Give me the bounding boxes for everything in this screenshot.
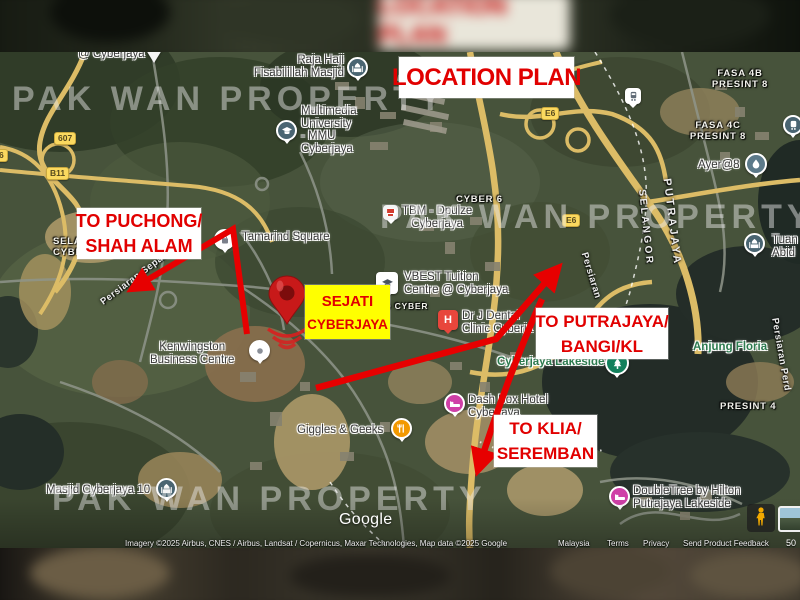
road-badge-e6: E6 [541,107,559,120]
blurred-title-card: LOCATION PLAN [378,0,570,50]
hospital-pin-icon[interactable]: H [438,310,458,330]
poi-label-vbest[interactable]: VBEST TuitionCentre @ Cyberjaya [404,271,508,296]
hotel-pin-icon[interactable] [444,393,465,414]
poi-label-giggles[interactable]: Giggles & Geeks [297,424,383,437]
poi-label-masjid-cyberjaya-10[interactable]: Masjid Cyberjaya 10 [46,484,150,497]
pegman-icon [755,507,767,529]
callout-sejati-cyberjaya: SEJATI CYBERJAYA [305,285,390,339]
store-pin-icon[interactable] [383,205,398,220]
poi-label-raja-haji[interactable]: Raja HajiFisabilillah Masjid [240,54,344,79]
scale-label: 50 [786,538,796,548]
area-label-cyber6: CYBER 6 [456,194,503,205]
blurred-location-plan-text: LOCATION PLAN [378,0,570,50]
terms-link[interactable]: Terms [607,539,629,548]
road-badge-edge: 6 [0,149,8,162]
hotel-pin-icon[interactable] [609,486,630,507]
road-badge-b11: B11 [46,167,69,180]
blurred-backdrop [0,548,800,600]
mosque-pin-icon[interactable] [744,233,765,254]
poi-label-kenwingston[interactable]: KenwingstonBusiness Centre [150,341,234,366]
station-pin-icon[interactable] [783,115,800,135]
blurred-backdrop: LOCATION PLAN [0,0,800,52]
water-pin-icon[interactable] [745,153,767,175]
area-label-o-cyber: O CYBER [384,301,428,312]
business-pin-icon[interactable] [249,340,270,361]
map-pin-icon[interactable] [146,52,162,63]
callout-to-klia: TO KLIA/ SEREMBAN [494,415,597,467]
train-station-pin-icon[interactable] [625,88,641,104]
callout-to-putrajaya: TO PUTRAJAYA/ BANGI/KL [536,308,668,359]
feedback-link[interactable]: Send Product Feedback [683,539,769,548]
road-badge-607: 607 [54,132,76,145]
university-pin-icon[interactable] [276,120,297,141]
poi-label-ayer8[interactable]: Ayer@8 [698,159,740,172]
mosque-pin-icon[interactable] [347,57,368,78]
satellite-imagery [0,52,800,548]
google-logo[interactable]: Google [339,511,392,529]
screenshot-stage: PAK WAN PROPERTY PAK WAN PROPERTY PAK WA… [0,0,800,600]
mosque-pin-icon[interactable] [156,478,177,499]
poi-label-tbm-dpulze[interactable]: TBM - DpulzeCyberjaya [402,205,472,230]
letterbox-top: LOCATION PLAN [0,0,800,52]
area-label-presint4: PRESINT 4 [720,401,776,412]
area-label-fasa4c: FASA 4CPRESINT 8 [684,120,752,142]
restaurant-pin-icon[interactable] [391,418,412,439]
callout-to-puchong: TO PUCHONG/ SHAH ALAM [77,208,201,259]
letterbox-bottom [0,548,800,600]
map-canvas[interactable]: PAK WAN PROPERTY PAK WAN PROPERTY PAK WA… [0,52,800,548]
pegman-control[interactable] [747,504,775,532]
area-label-fasa4b: FASA 4BPRESINT 8 [706,68,774,90]
poi-label-anjung-floria[interactable]: Anjung Floria [693,341,767,354]
poi-label-doubletree[interactable]: DoubleTree by HiltonPutrajaya Lakeside [633,485,741,510]
poi-label-dental[interactable]: Dr J DentalClinic Cyberja [462,310,533,335]
poi-label-mmu[interactable]: MultimediaUniversity - MMUCyberjaya [301,105,357,155]
attribution-bar: Imagery ©2025 Airbus, CNES / Airbus, Lan… [0,539,800,548]
privacy-link[interactable]: Privacy [643,539,669,548]
poi-label-cyberjaya-at[interactable]: @ Cyberjaya [78,52,145,61]
page-title: LOCATION PLAN [392,64,581,92]
shopping-pin-icon[interactable] [214,229,235,250]
map-type-thumbnail[interactable] [778,506,800,532]
hospital-letter: H [444,314,452,326]
location-plan-title: LOCATION PLAN [399,57,574,98]
country-link[interactable]: Malaysia [558,539,590,548]
poi-label-tamarind-square[interactable]: Tamarind Square [242,231,330,244]
road-badge-e6: E6 [562,214,580,227]
imagery-attribution: Imagery ©2025 Airbus, CNES / Airbus, Lan… [125,539,507,548]
poi-label-tuan[interactable]: TuanAbid [772,234,798,259]
